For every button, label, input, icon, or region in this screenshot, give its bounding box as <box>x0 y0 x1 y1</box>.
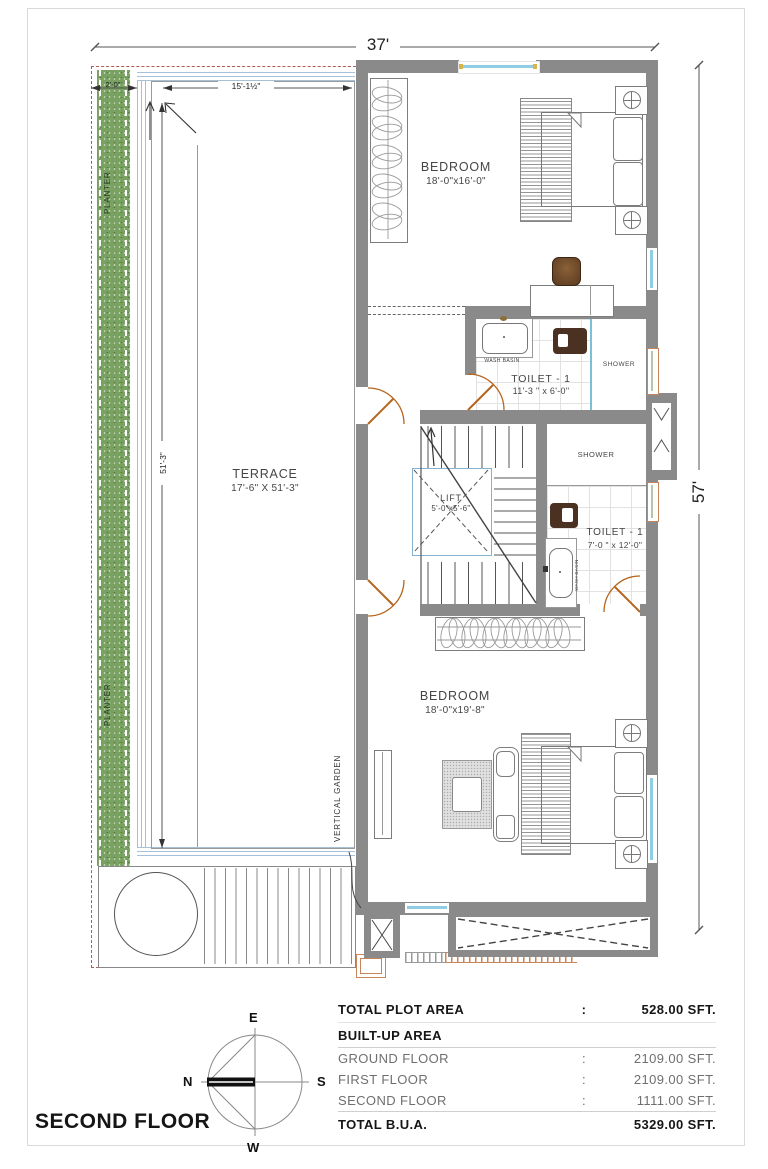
terrace-name: TERRACE <box>205 467 325 483</box>
dimension-lines <box>91 43 703 934</box>
row-label: TOTAL PLOT AREA <box>338 1002 576 1017</box>
washbasin1-label: WASH BASIN <box>470 358 534 364</box>
leader-line <box>349 852 361 908</box>
table-row: BUILT-UP AREA <box>338 1022 716 1048</box>
bedroom1-size: 18'-0"x16'-0" <box>408 176 504 189</box>
row-label: SECOND FLOOR <box>338 1093 576 1108</box>
table-row: TOTAL PLOT AREA : 528.00 SFT. <box>338 997 716 1022</box>
compass-north: N <box>183 1074 192 1089</box>
door-arcs <box>368 374 640 616</box>
table-row: SECOND FLOOR : 1111.00 SFT. <box>338 1090 716 1111</box>
row-sep: : <box>576 1002 592 1017</box>
duct-x-mark <box>372 920 392 950</box>
dim-planter-width: 2'-0" <box>92 80 134 89</box>
bedroom1-label: BEDROOM 18'-0"x16'-0" <box>408 160 504 188</box>
toilet2-label: TOILET - 1 7'-0 " x 12'-0" <box>573 527 657 550</box>
washbasin2-label: WASH BASIN <box>574 552 583 598</box>
linework-layer <box>0 0 768 990</box>
table-row: GROUND FLOOR : 2109.00 SFT. <box>338 1048 716 1069</box>
lift-label: LIFT 5'-0"x5'-6" <box>412 493 490 514</box>
row-sep: : <box>576 1093 592 1108</box>
page-title: SECOND FLOOR <box>35 1110 210 1134</box>
bedroom1-name: BEDROOM <box>408 160 504 176</box>
compass-south: S <box>317 1074 326 1089</box>
shower2-label: SHOWER <box>560 450 632 459</box>
lift-size: 5'-0"x5'-6" <box>412 504 490 514</box>
terrace-label: TERRACE 17'-6" X 51'-3" <box>205 467 325 495</box>
duct-chevrons <box>654 408 669 452</box>
row-label: FIRST FLOOR <box>338 1072 576 1087</box>
row-sep: : <box>576 1051 592 1066</box>
dim-total-width: 37' <box>356 35 400 55</box>
toilet2-size: 7'-0 " x 12'-0" <box>573 540 657 551</box>
terrace-size: 17'-6" X 51'-3" <box>205 483 325 496</box>
row-label: TOTAL B.U.A. <box>338 1117 576 1132</box>
toilet1-label: TOILET - 1 11'-3 " x 6'-0" <box>493 373 589 397</box>
dim-total-height: 57' <box>689 470 709 514</box>
area-table: TOTAL PLOT AREA : 528.00 SFT. BUILT-UP A… <box>338 997 716 1137</box>
row-value: 2109.00 SFT. <box>592 1072 716 1087</box>
bedroom2-size: 18'-0"x19'-8" <box>405 705 505 718</box>
compass-west: W <box>247 1140 259 1155</box>
void-x-mark <box>458 919 648 948</box>
bedroom2-label: BEDROOM 18'-0"x19'-8" <box>405 689 505 717</box>
slope-arrows <box>146 102 196 140</box>
planter-label-bottom: PLANTER <box>103 670 123 740</box>
row-value: 1111.00 SFT. <box>592 1093 716 1108</box>
toilet1-size: 11'-3 " x 6'-0" <box>493 386 589 397</box>
row-value: 2109.00 SFT. <box>592 1051 716 1066</box>
bedroom2-name: BEDROOM <box>405 689 505 705</box>
compass-east: E <box>249 1010 258 1025</box>
row-sep: : <box>576 1072 592 1087</box>
row-value: 5329.00 SFT. <box>592 1117 716 1132</box>
row-label: BUILT-UP AREA <box>338 1028 576 1043</box>
stair-diagonal <box>421 427 536 603</box>
table-row: TOTAL B.U.A. 5329.00 SFT. <box>338 1111 716 1137</box>
bed-fold-corner <box>568 113 581 761</box>
planter-label-top: PLANTER <box>103 158 123 228</box>
shower1-label: SHOWER <box>592 361 646 369</box>
vertical-garden-label: VERTICAL GARDEN <box>333 742 347 854</box>
floor-plan-sheet: { "title": "SECOND FLOOR", "dims": { "wi… <box>0 0 768 1169</box>
table-row: FIRST FLOOR : 2109.00 SFT. <box>338 1069 716 1090</box>
dim-terrace-length: 51'-3" <box>158 441 168 485</box>
row-label: GROUND FLOOR <box>338 1051 576 1066</box>
dim-terrace-top-width: 15'-1½" <box>218 81 274 91</box>
toilet1-name: TOILET - 1 <box>493 373 589 386</box>
lift-name: LIFT <box>412 493 490 504</box>
row-value: 528.00 SFT. <box>592 1002 716 1017</box>
toilet2-name: TOILET - 1 <box>573 527 657 540</box>
